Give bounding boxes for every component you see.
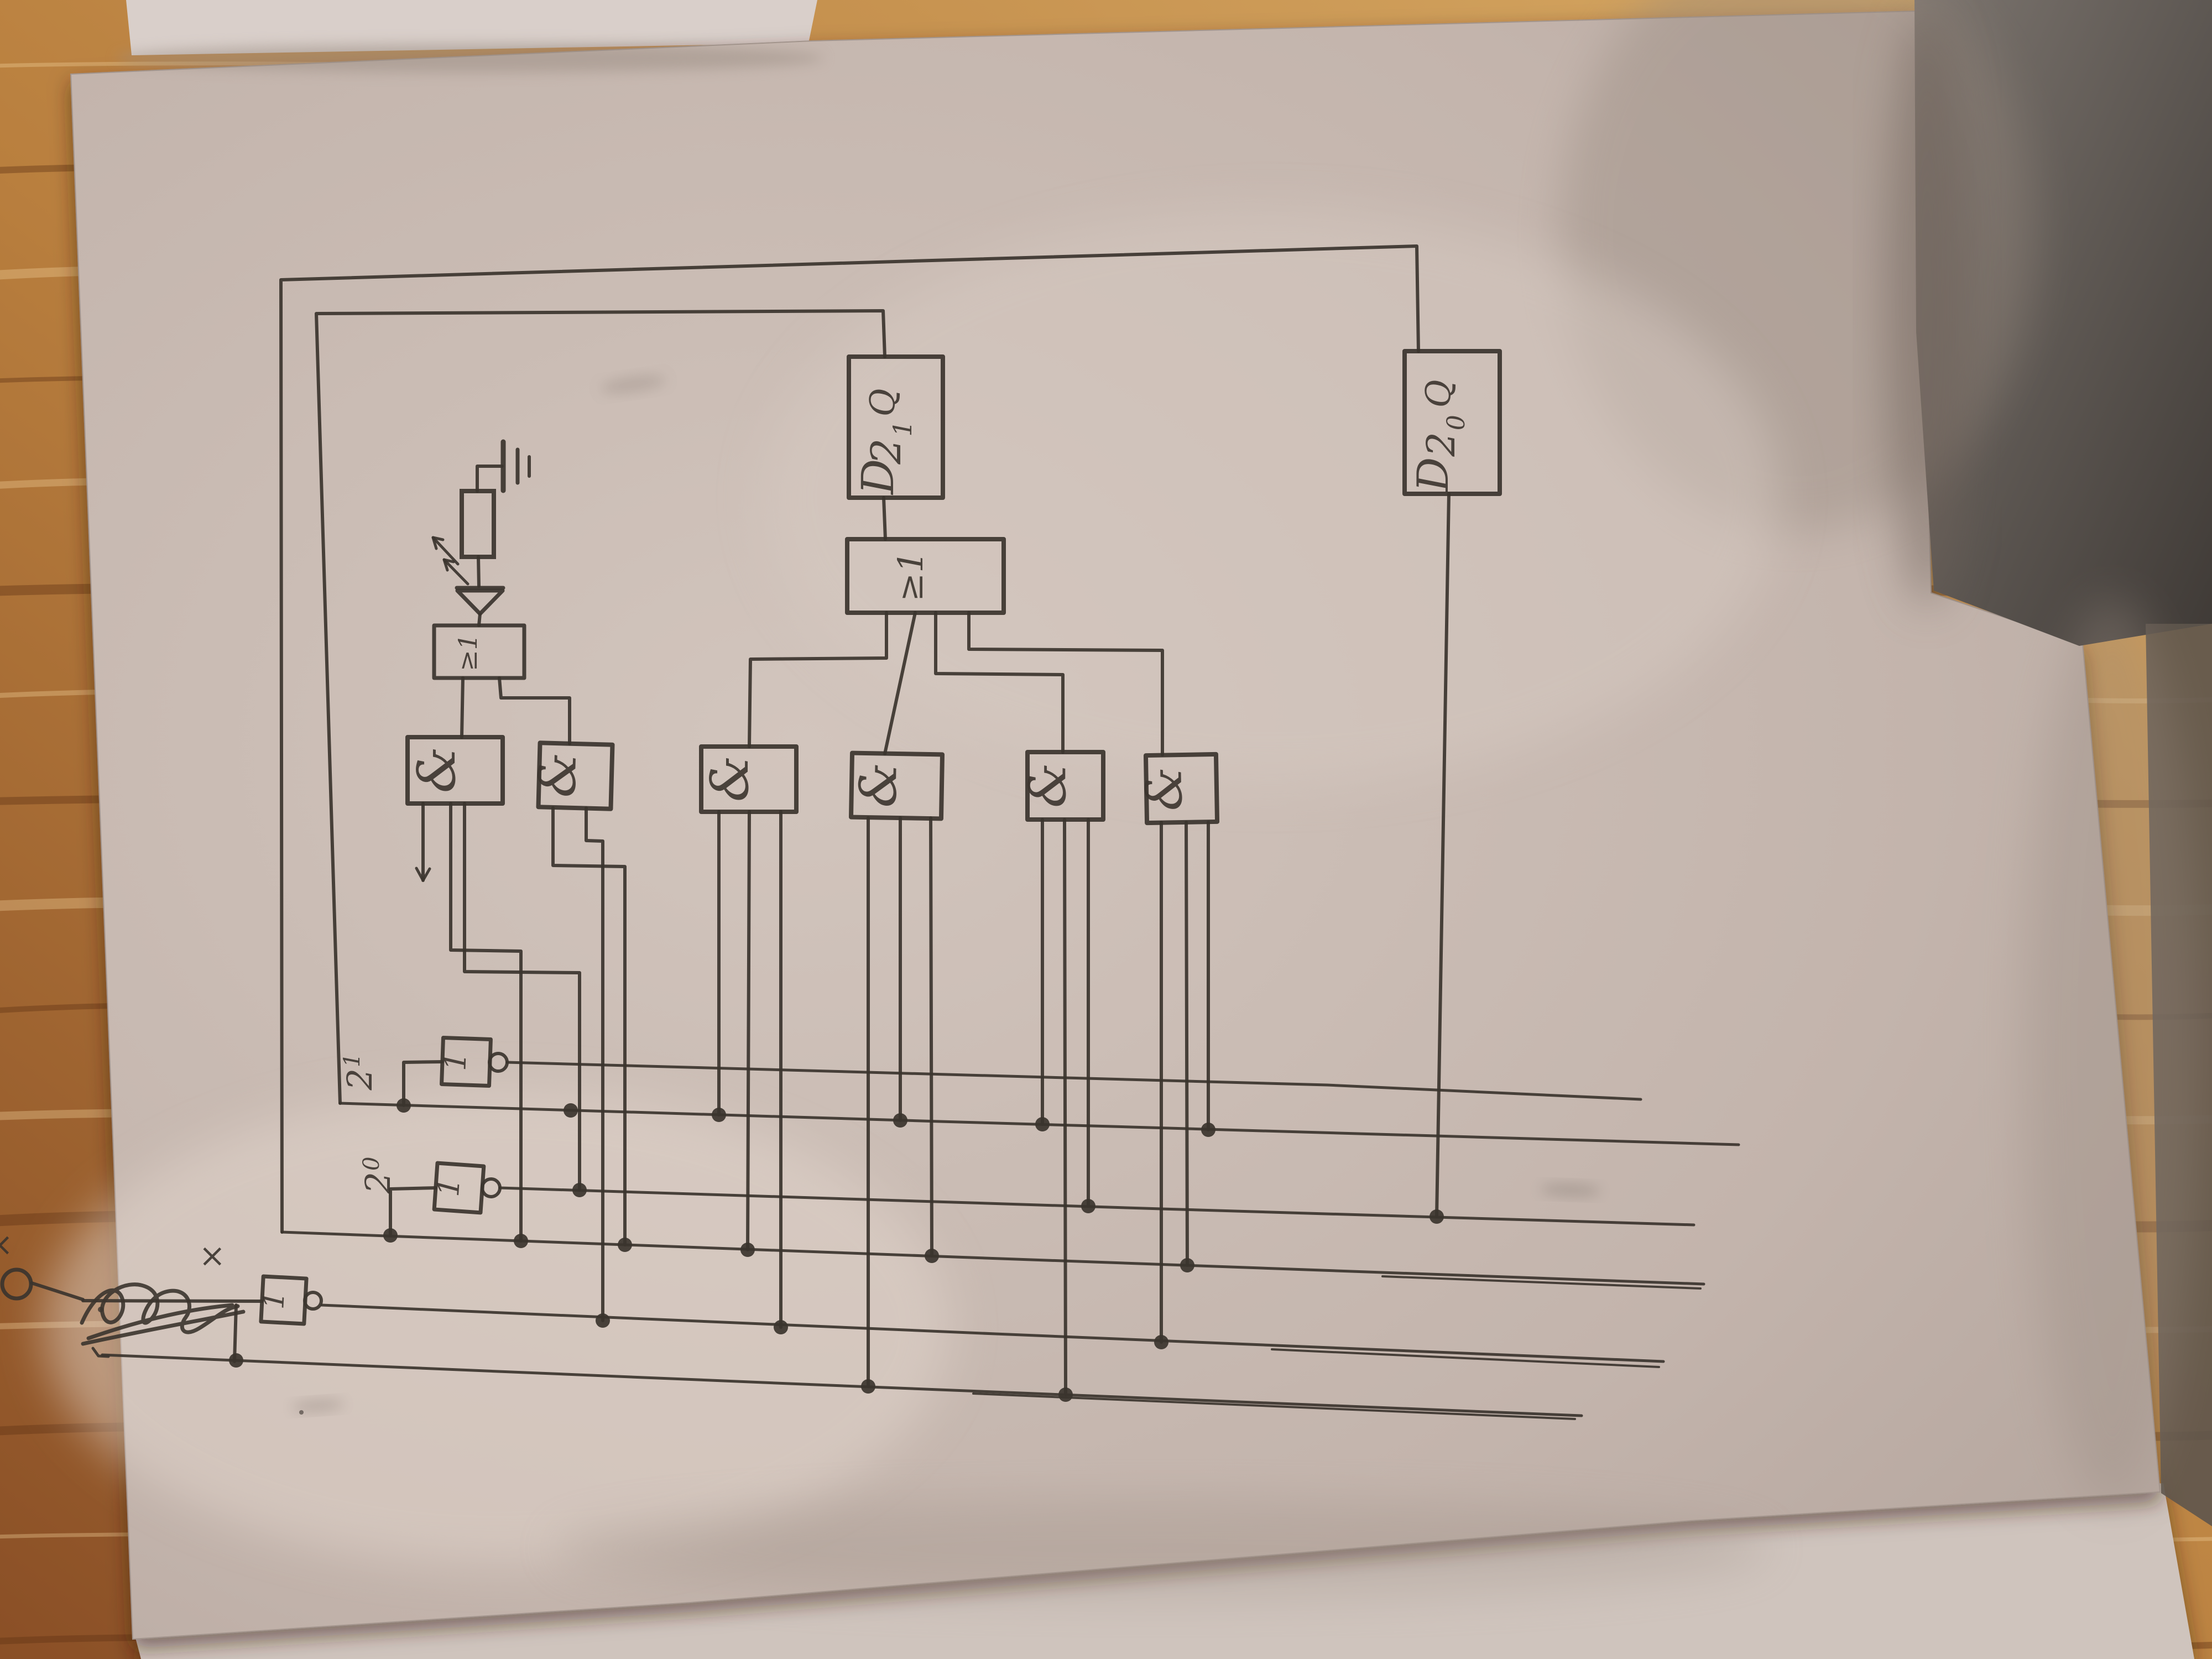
and-gate-6-box-label: & <box>1135 766 1193 812</box>
junction-dot <box>1201 1123 1215 1137</box>
and4-out-3 <box>931 818 932 1256</box>
ff-2p1-d-wire <box>884 498 885 539</box>
junction-dot <box>1035 1117 1050 1131</box>
label-x-edge: × <box>0 1232 18 1259</box>
junction-dot <box>861 1379 875 1394</box>
junction-dot <box>383 1228 398 1243</box>
junction-dot <box>740 1243 755 1257</box>
and-gate-2-box-label: & <box>528 752 588 799</box>
object-shadow <box>1886 11 1969 608</box>
junction-dot <box>893 1113 907 1128</box>
and-gate-3-box-label: & <box>700 755 760 802</box>
and-gate-4-box-label: & <box>848 762 908 808</box>
x-input-line <box>83 1301 262 1301</box>
ff-2p1-box-label: D <box>852 459 904 495</box>
junction-dot <box>1058 1387 1073 1402</box>
photo-of-hand-drawn-logic-circuit: Q21DQ20D≥1≥1&&&&&&1112120×× <box>0 0 2212 1659</box>
junction-dot <box>564 1103 578 1118</box>
and3-out-2 <box>748 812 749 1250</box>
or-led-in-left <box>462 678 463 737</box>
junction-dot <box>1430 1209 1444 1224</box>
junction-dot <box>1081 1199 1095 1213</box>
ink-speck-2 <box>299 1410 304 1415</box>
junction-dot <box>712 1108 726 1122</box>
junction-dot <box>596 1313 610 1328</box>
shade-right-edge <box>2024 597 2201 1504</box>
junction-dot <box>618 1238 632 1252</box>
inverter-2p0-box-label: 1 <box>431 1176 467 1198</box>
and-gate-1-box-label: & <box>406 747 467 794</box>
ff-2p1-box-label: Q <box>862 389 902 417</box>
and6-out-2 <box>1186 822 1187 1265</box>
label-x: × <box>192 1243 230 1270</box>
junction-dot <box>1180 1258 1194 1272</box>
junction-dot <box>229 1353 243 1368</box>
circuit-diagram-photo: Q21DQ20D≥1≥1&&&&&&1112120×× <box>0 0 2212 1659</box>
crease-bottom <box>553 1499 1770 1598</box>
and5-out-2 <box>1065 820 1066 1395</box>
junction-dot <box>774 1320 788 1334</box>
inverter-x-box-label: 1 <box>257 1290 291 1310</box>
sheet-shadow-top <box>116 44 824 72</box>
and-gate-5-box-label: & <box>1018 763 1077 808</box>
junction-dot <box>1154 1335 1168 1349</box>
or-gate-led-box-label: ≥1 <box>453 634 483 671</box>
junction-dot <box>514 1234 528 1248</box>
junction-dot <box>397 1098 411 1113</box>
or-gate-main-box-label: ≥1 <box>890 551 931 601</box>
resistor-led-wire <box>478 557 479 586</box>
junction-dot <box>925 1249 939 1263</box>
ff-2p0-box-label: D <box>1408 457 1458 493</box>
ink-speck-1 <box>98 1307 103 1312</box>
junction-dot <box>572 1183 587 1197</box>
inverter-2p1-box-label: 1 <box>437 1051 473 1072</box>
ff-2p0-box-label: Q <box>1418 380 1458 408</box>
